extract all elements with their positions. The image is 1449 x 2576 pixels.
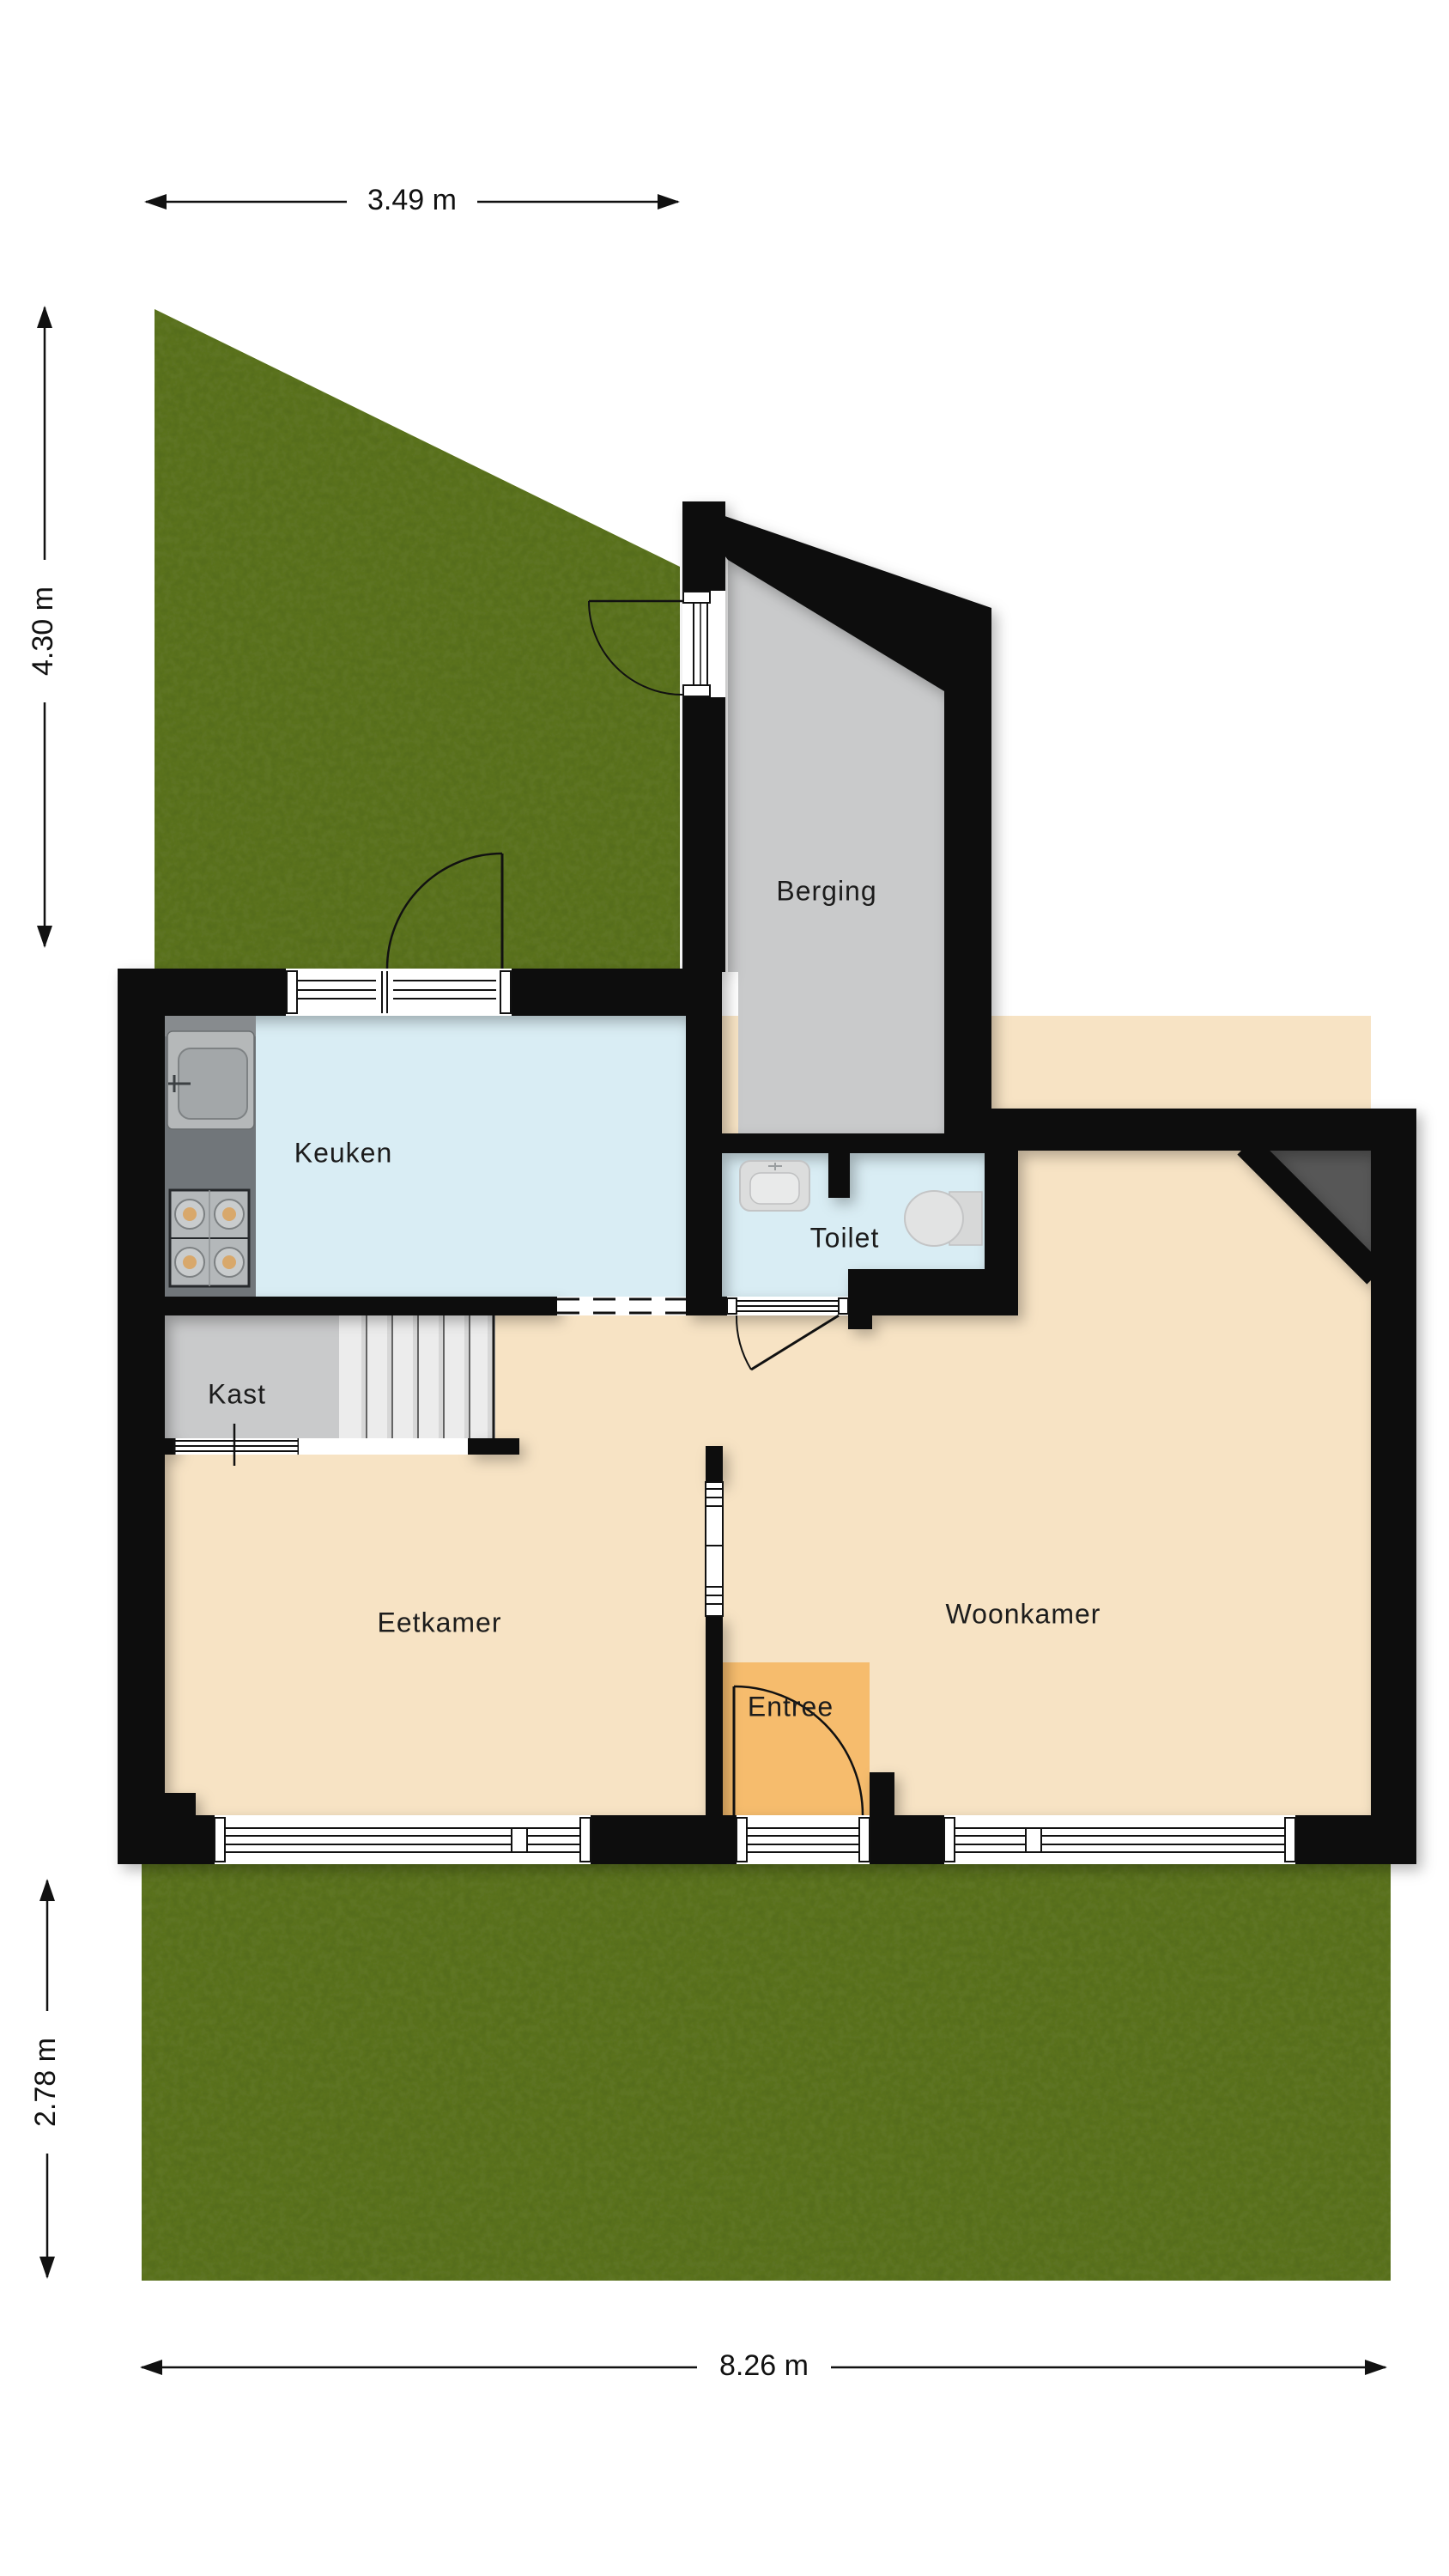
window-kitchen-top <box>286 969 512 1016</box>
wall-left <box>118 969 165 1864</box>
window-central-wall <box>706 1482 723 1616</box>
wall-kast-jamb <box>165 1438 174 1455</box>
dimension-bottom: 8.26 m <box>142 2349 1385 2382</box>
label-eetkamer: Eetkamer <box>378 1607 502 1637</box>
label-kast: Kast <box>208 1378 266 1409</box>
wall-toilet-stub <box>828 1153 850 1198</box>
kitchen-stove <box>170 1190 249 1286</box>
floorplan-page: Berging Keuken Toilet Kast Eetkamer Woon… <box>0 0 1449 2576</box>
wall-berging-left <box>682 501 725 972</box>
dim-bottom-value: 8.26 m <box>719 2349 809 2382</box>
dim-left-lower-value: 2.78 m <box>29 2038 62 2127</box>
hatch-kitchen <box>557 1297 686 1315</box>
dim-top-value: 3.49 m <box>367 184 457 216</box>
label-keuken: Keuken <box>294 1137 393 1168</box>
label-entree: Entree <box>748 1691 834 1722</box>
wall-kitchen-bottom <box>165 1297 557 1315</box>
label-berging: Berging <box>776 875 876 906</box>
wall-nub-entree <box>870 1772 894 1815</box>
floorplan-canvas: Berging Keuken Toilet Kast Eetkamer Woon… <box>0 0 1449 2576</box>
room-floor-kast <box>165 1315 339 1438</box>
label-woonkamer: Woonkamer <box>946 1598 1101 1629</box>
dimension-left-upper: 4.30 m <box>27 307 59 946</box>
dim-left-upper-value: 4.30 m <box>27 586 59 676</box>
wall-berging-bottom <box>722 1133 994 1153</box>
wall-right <box>1371 1109 1416 1864</box>
wall-central-cap <box>706 1446 723 1482</box>
room-floor-entree <box>723 1662 870 1815</box>
opening-stairs <box>299 1438 468 1455</box>
window-eetkamer <box>215 1815 591 1864</box>
dimension-left-lower: 2.78 m <box>29 1880 62 2277</box>
wall-central-lower <box>706 1616 723 1815</box>
window-kast <box>174 1438 299 1455</box>
wall-nub-bottom-left <box>165 1793 196 1815</box>
wall-top-living <box>985 1109 1416 1151</box>
wall-stairs-stub <box>468 1438 519 1455</box>
window-woonkamer <box>944 1815 1295 1864</box>
toilet-bowl <box>905 1191 982 1246</box>
dimension-top: 3.49 m <box>146 184 678 216</box>
wall-kitchen-right <box>686 969 722 1315</box>
garden-top <box>155 309 680 969</box>
toilet-basin <box>740 1161 809 1211</box>
label-toilet: Toilet <box>810 1222 880 1253</box>
garden-bottom <box>142 1864 1391 2281</box>
wall-nub-toilet <box>848 1269 872 1329</box>
kitchen-sink <box>167 1031 254 1129</box>
stairs <box>339 1315 495 1438</box>
wall-berging-right <box>944 678 991 1153</box>
wall-toilet-right <box>985 1151 1018 1315</box>
